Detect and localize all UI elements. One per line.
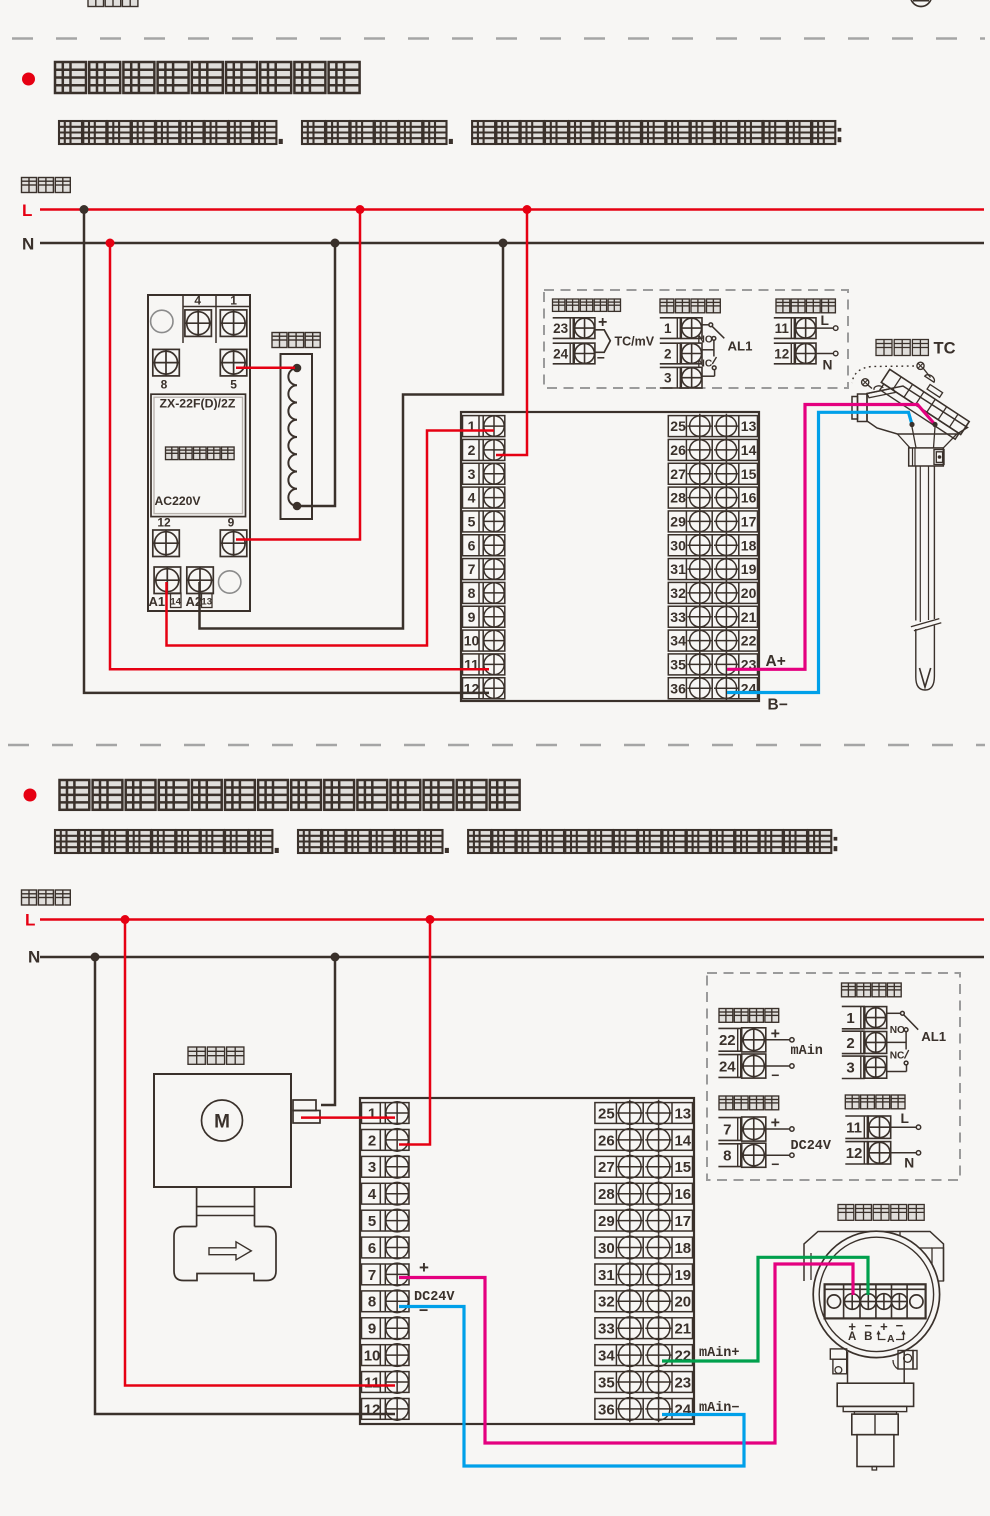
svg-text:NO: NO xyxy=(890,1025,905,1036)
svg-text:6: 6 xyxy=(468,537,476,553)
svg-text:26: 26 xyxy=(598,1132,615,1149)
svg-text:14: 14 xyxy=(741,442,757,458)
svg-text:L: L xyxy=(22,201,32,220)
svg-text:M: M xyxy=(214,1112,230,1133)
svg-text:22: 22 xyxy=(741,633,757,649)
svg-text:9: 9 xyxy=(228,516,235,530)
svg-text:L: L xyxy=(821,313,829,328)
svg-text:23: 23 xyxy=(674,1374,691,1391)
svg-text:1: 1 xyxy=(664,321,672,336)
svg-text:7: 7 xyxy=(723,1121,731,1138)
svg-text:+: + xyxy=(598,314,607,331)
svg-text:12: 12 xyxy=(846,1145,863,1162)
svg-text:21: 21 xyxy=(674,1321,691,1338)
svg-text:NC: NC xyxy=(698,359,713,370)
svg-text:L: L xyxy=(25,911,35,930)
svg-text:25: 25 xyxy=(598,1105,615,1122)
svg-text:mAin+: mAin+ xyxy=(699,1346,740,1361)
svg-text:2: 2 xyxy=(468,442,476,458)
svg-text:8: 8 xyxy=(723,1148,731,1165)
svg-text:13: 13 xyxy=(674,1105,691,1122)
svg-text:3: 3 xyxy=(664,371,672,386)
svg-text:7: 7 xyxy=(368,1267,376,1284)
svg-text:19: 19 xyxy=(741,561,757,577)
svg-text:26: 26 xyxy=(670,442,686,458)
svg-text:3: 3 xyxy=(846,1060,854,1077)
svg-text:15: 15 xyxy=(741,466,757,482)
svg-text:30: 30 xyxy=(598,1240,615,1257)
svg-text:23: 23 xyxy=(553,321,569,336)
svg-text:12: 12 xyxy=(774,346,789,361)
svg-text:18: 18 xyxy=(674,1240,691,1257)
svg-text:AC220V: AC220V xyxy=(155,494,202,508)
svg-text:34: 34 xyxy=(598,1348,615,1365)
svg-text:35: 35 xyxy=(598,1374,615,1391)
svg-text:1: 1 xyxy=(368,1105,376,1122)
svg-text:12: 12 xyxy=(157,516,171,530)
svg-text:N: N xyxy=(904,1156,914,1171)
svg-text:11: 11 xyxy=(846,1120,862,1137)
svg-text:28: 28 xyxy=(598,1186,615,1203)
svg-text:32: 32 xyxy=(670,585,686,601)
svg-text:−: − xyxy=(771,1156,779,1172)
svg-text:mAin−: mAin− xyxy=(699,1401,740,1416)
svg-text:B: B xyxy=(864,1331,872,1343)
svg-text:1: 1 xyxy=(230,294,237,308)
svg-text:19: 19 xyxy=(674,1267,691,1284)
svg-text:33: 33 xyxy=(670,609,686,625)
svg-text:17: 17 xyxy=(674,1213,691,1230)
svg-text:27: 27 xyxy=(598,1159,615,1176)
svg-text:36: 36 xyxy=(598,1401,615,1418)
svg-text:N: N xyxy=(823,358,833,373)
svg-text:8: 8 xyxy=(468,585,476,601)
svg-text:2: 2 xyxy=(368,1132,376,1149)
svg-text:DC24V: DC24V xyxy=(791,1139,832,1154)
svg-text:5: 5 xyxy=(368,1213,376,1230)
svg-text:22: 22 xyxy=(719,1032,736,1049)
svg-text:8: 8 xyxy=(368,1294,376,1311)
svg-text:+: + xyxy=(880,1319,888,1334)
svg-text:7: 7 xyxy=(468,561,476,577)
svg-text:A+: A+ xyxy=(766,653,786,670)
svg-text:15: 15 xyxy=(674,1159,691,1176)
svg-text:10: 10 xyxy=(364,1348,381,1365)
svg-text:13: 13 xyxy=(741,418,757,434)
svg-text:−: − xyxy=(771,1067,779,1083)
svg-text:3: 3 xyxy=(368,1159,376,1176)
svg-text:12: 12 xyxy=(364,1401,381,1418)
svg-text:N: N xyxy=(28,948,40,967)
svg-text:A1: A1 xyxy=(149,594,166,609)
svg-text:AL1: AL1 xyxy=(728,339,753,354)
svg-text:9: 9 xyxy=(368,1321,376,1338)
svg-text:TC/mV: TC/mV xyxy=(615,335,655,349)
svg-text:−: − xyxy=(419,1303,428,1320)
svg-text:9: 9 xyxy=(468,609,476,625)
svg-text:L: L xyxy=(901,1111,909,1126)
svg-text:2: 2 xyxy=(664,346,672,361)
svg-text:4: 4 xyxy=(368,1186,377,1203)
svg-text:17: 17 xyxy=(741,513,757,529)
svg-text:35: 35 xyxy=(670,656,686,672)
svg-text:31: 31 xyxy=(598,1267,615,1284)
svg-text:TC: TC xyxy=(934,340,956,358)
svg-text:20: 20 xyxy=(674,1294,691,1311)
svg-text:29: 29 xyxy=(598,1213,615,1230)
svg-text:5: 5 xyxy=(230,378,237,392)
svg-text:ZX-22F(D)/2Z: ZX-22F(D)/2Z xyxy=(160,397,236,411)
svg-text:13: 13 xyxy=(201,597,212,608)
svg-text:A: A xyxy=(848,1331,856,1343)
svg-text:21: 21 xyxy=(741,609,757,625)
svg-text:18: 18 xyxy=(741,537,757,553)
svg-text:36: 36 xyxy=(670,680,686,696)
svg-text:3: 3 xyxy=(468,466,476,482)
svg-text:31: 31 xyxy=(670,561,686,577)
svg-text:AL1: AL1 xyxy=(921,1029,946,1044)
svg-text:28: 28 xyxy=(670,490,686,506)
svg-text:24: 24 xyxy=(553,346,569,361)
svg-text:11: 11 xyxy=(775,321,790,336)
svg-text:8: 8 xyxy=(161,378,168,392)
svg-text:B−: B− xyxy=(768,697,788,714)
svg-text:mAin: mAin xyxy=(791,1044,823,1059)
svg-text:32: 32 xyxy=(598,1294,615,1311)
svg-text:20: 20 xyxy=(741,585,757,601)
svg-text:A: A xyxy=(887,1333,895,1345)
svg-text:2: 2 xyxy=(846,1035,854,1052)
svg-text:−: − xyxy=(896,1318,904,1333)
svg-text:16: 16 xyxy=(741,490,757,506)
svg-text:14: 14 xyxy=(674,1132,691,1149)
svg-text:4: 4 xyxy=(194,294,201,308)
svg-text:11: 11 xyxy=(364,1374,380,1391)
svg-text:6: 6 xyxy=(368,1240,376,1257)
svg-text:5: 5 xyxy=(468,513,476,529)
svg-text:14: 14 xyxy=(170,597,181,608)
svg-text:25: 25 xyxy=(670,418,686,434)
svg-text:27: 27 xyxy=(670,466,686,482)
svg-text:34: 34 xyxy=(670,633,686,649)
svg-text:1: 1 xyxy=(846,1010,854,1027)
svg-text:NO: NO xyxy=(698,335,713,346)
svg-text:NC: NC xyxy=(890,1051,905,1062)
svg-text:4: 4 xyxy=(468,490,476,506)
svg-text:N: N xyxy=(22,235,34,254)
svg-text:16: 16 xyxy=(674,1186,691,1203)
svg-text:24: 24 xyxy=(719,1058,736,1075)
svg-text:29: 29 xyxy=(670,513,686,529)
svg-text:30: 30 xyxy=(670,537,686,553)
svg-text:33: 33 xyxy=(598,1321,615,1338)
svg-text:10: 10 xyxy=(464,633,480,649)
svg-text:+: + xyxy=(419,1258,429,1277)
